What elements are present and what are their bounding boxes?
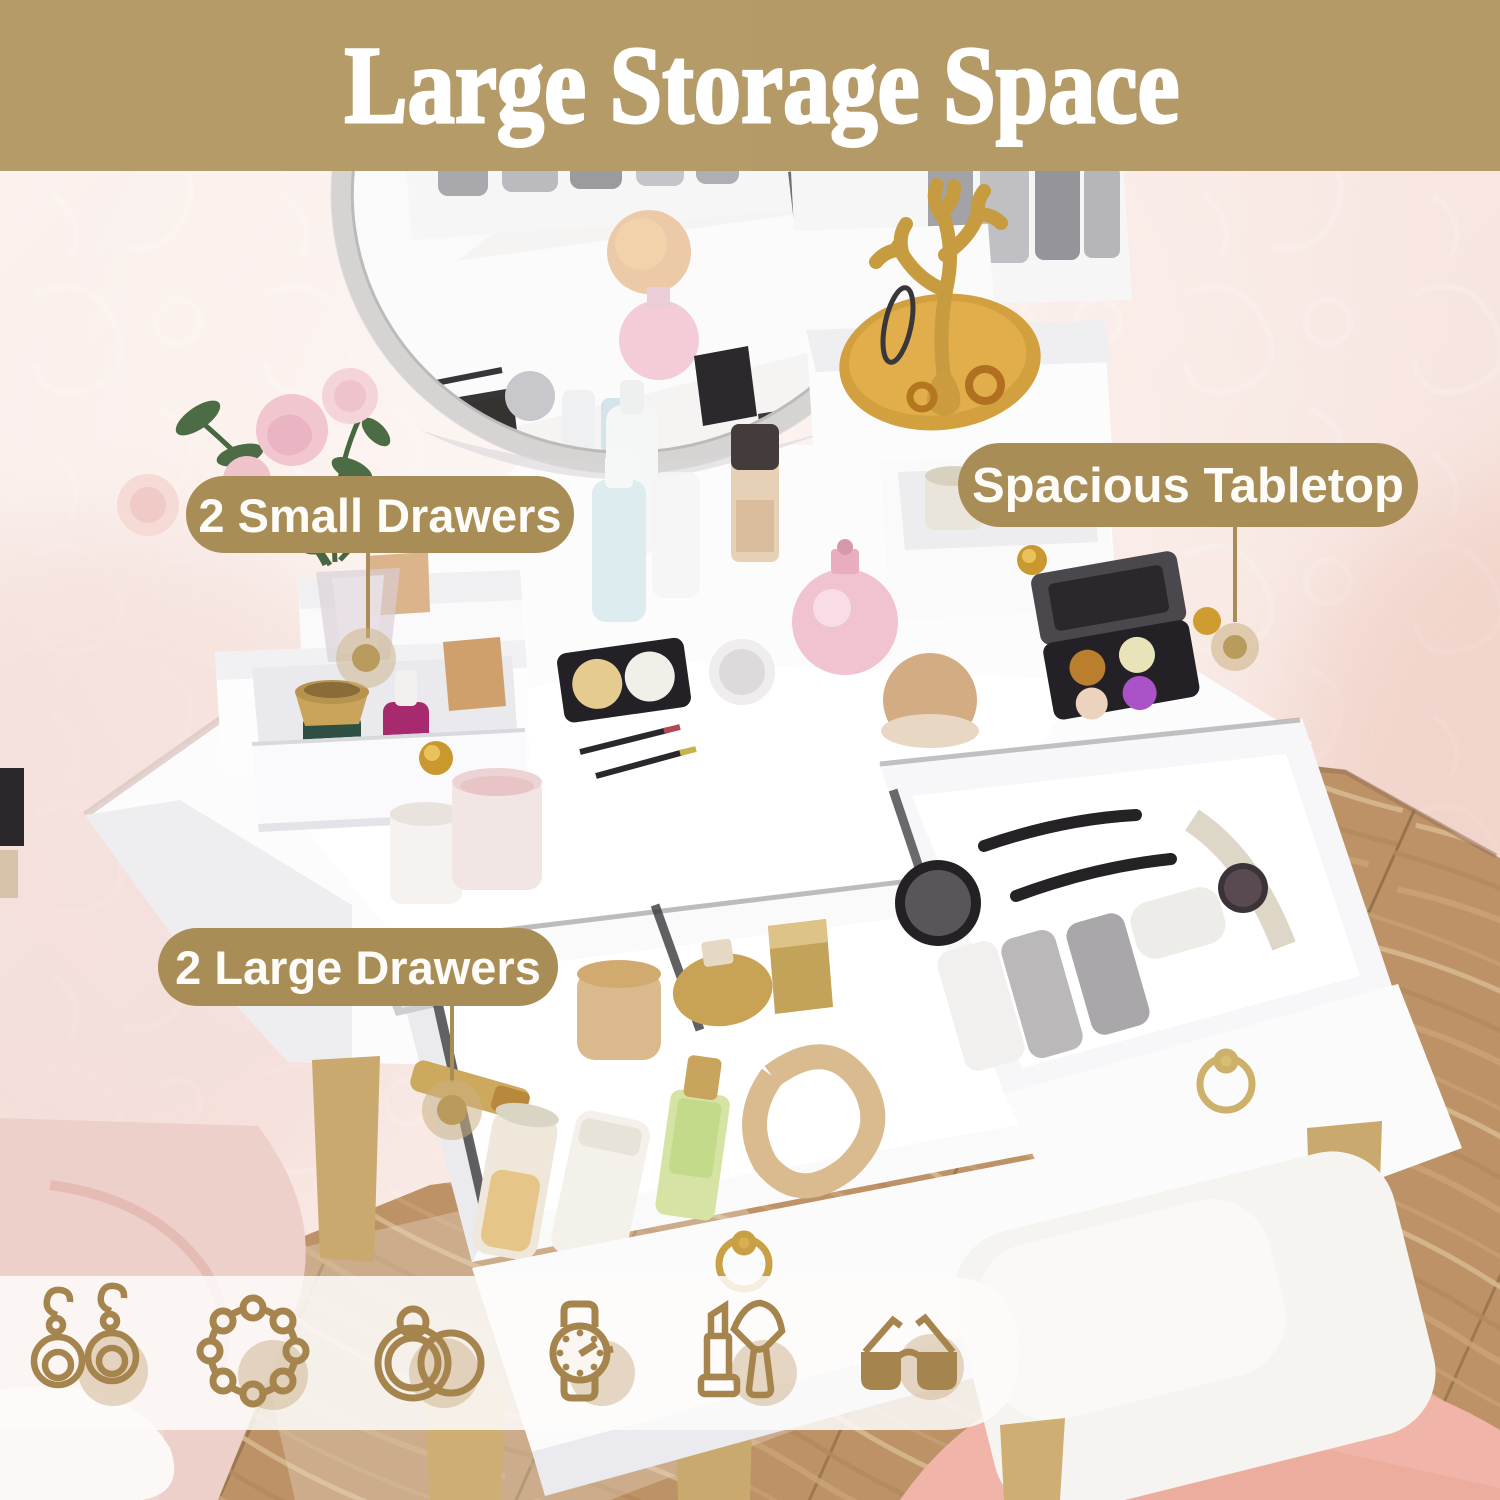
svg-text:2 Large Drawers: 2 Large Drawers — [175, 941, 541, 994]
svg-text:Large Storage Space: Large Storage Space — [345, 24, 1180, 146]
svg-text:2 Small Drawers: 2 Small Drawers — [198, 489, 561, 542]
svg-text:Spacious Tabletop: Spacious Tabletop — [972, 459, 1404, 513]
